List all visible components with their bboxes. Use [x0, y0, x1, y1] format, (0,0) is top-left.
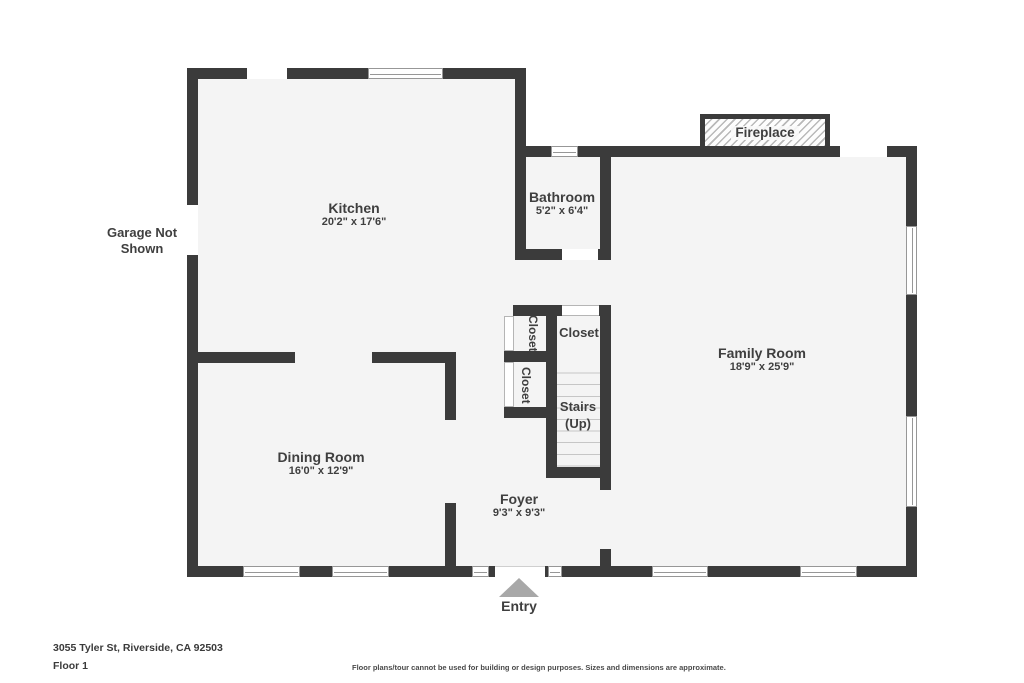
room-dims-bathroom: 5'2" x 6'4" — [536, 205, 588, 217]
window-opening-family-top — [840, 146, 887, 157]
stairs-treads — [557, 362, 600, 467]
window-kitchen-top — [368, 68, 443, 79]
closet-label-main: Closet — [559, 325, 599, 340]
garage-note: Garage Not Shown — [87, 225, 197, 257]
room-dims-foyer: 9'3" x 9'3" — [493, 507, 545, 519]
wall-dining-top-right — [372, 352, 456, 363]
door-closet-upper-left — [504, 316, 514, 351]
address-text: 3055 Tyler St, Riverside, CA 92503 — [53, 642, 223, 654]
wall-dining-right-upper — [445, 352, 456, 420]
wall-exterior-left — [187, 68, 198, 577]
room-label-family-room: Family Room — [718, 345, 806, 361]
room-label-kitchen: Kitchen — [328, 200, 379, 216]
disclaimer-text: Floor plans/tour cannot be used for buil… — [352, 663, 726, 672]
wall-exterior-top-kitchen — [187, 68, 522, 79]
door-opening-entry — [495, 566, 545, 577]
wall-closet-mid — [504, 351, 557, 362]
room-dims-dining-room: 16'0" x 12'9" — [289, 465, 354, 477]
window-family-right-2 — [906, 416, 917, 507]
window-foyer-right-of-entry — [548, 566, 562, 577]
floor-plan: Fireplace Kitchen 20'2" x 17'6" Bathroom… — [0, 0, 1024, 683]
wall-stairs-left — [546, 362, 557, 478]
door-opening-bathroom — [562, 249, 598, 260]
wall-dining-right-lower — [445, 503, 456, 577]
room-label-foyer: Foyer — [500, 491, 538, 507]
window-family-bottom-1 — [652, 566, 708, 577]
wall-stairs-right — [600, 305, 611, 490]
room-dims-family-room: 18'9" x 25'9" — [730, 361, 795, 373]
window-family-right-1 — [906, 226, 917, 295]
wall-kitchen-right — [515, 68, 526, 260]
window-family-bottom-2 — [800, 566, 857, 577]
door-closet-lower-left — [504, 362, 514, 407]
stairs-label-line1: Stairs — [560, 399, 596, 414]
room-label-dining-room: Dining Room — [277, 449, 364, 465]
window-foyer-left-of-entry — [472, 566, 489, 577]
window-dining-bottom-1 — [243, 566, 300, 577]
floor-number-text: Floor 1 — [53, 660, 88, 672]
window-bathroom-top — [551, 146, 578, 157]
entry-label: Entry — [501, 598, 537, 614]
room-dims-kitchen: 20'2" x 17'6" — [322, 216, 387, 228]
wall-foyer-stub — [600, 549, 611, 566]
wall-exterior-right — [906, 146, 917, 577]
fireplace-label: Fireplace — [731, 126, 798, 141]
stairs-label-line2: (Up) — [565, 416, 591, 431]
door-opening-kitchen-top — [247, 68, 287, 79]
wall-bathroom-right — [600, 146, 611, 260]
entry-arrow-icon — [499, 578, 539, 597]
door-opening-closet-top — [562, 305, 599, 316]
floor-area-left — [192, 73, 522, 572]
window-dining-bottom-2 — [332, 566, 389, 577]
room-label-bathroom: Bathroom — [529, 189, 595, 205]
closet-label-upper-left: Closet — [523, 314, 543, 352]
wall-dining-top-left — [187, 352, 295, 363]
closet-label-lower-left: Closet — [516, 363, 536, 407]
